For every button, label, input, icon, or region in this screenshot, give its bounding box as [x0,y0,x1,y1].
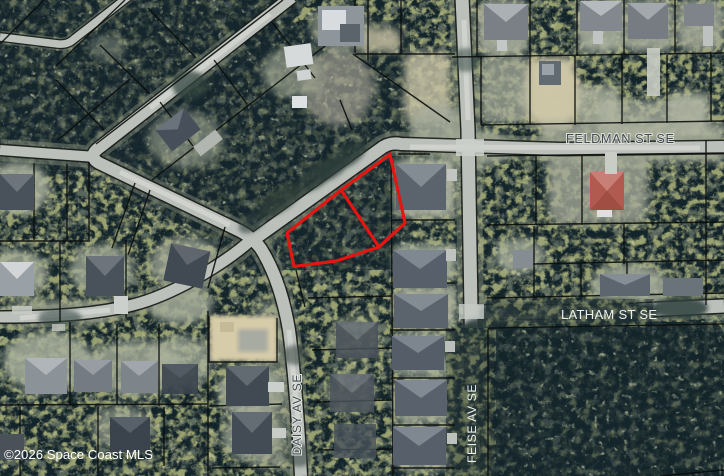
svg-text:FELDMAN ST SE: FELDMAN ST SE [566,131,675,146]
svg-text:DAISY AV SE: DAISY AV SE [290,374,304,456]
svg-text:FEISE AV SE: FEISE AV SE [465,384,479,463]
svg-text:LATHAM ST SE: LATHAM ST SE [561,307,657,322]
svg-text:©2026 Space Coast MLS: ©2026 Space Coast MLS [4,447,153,462]
